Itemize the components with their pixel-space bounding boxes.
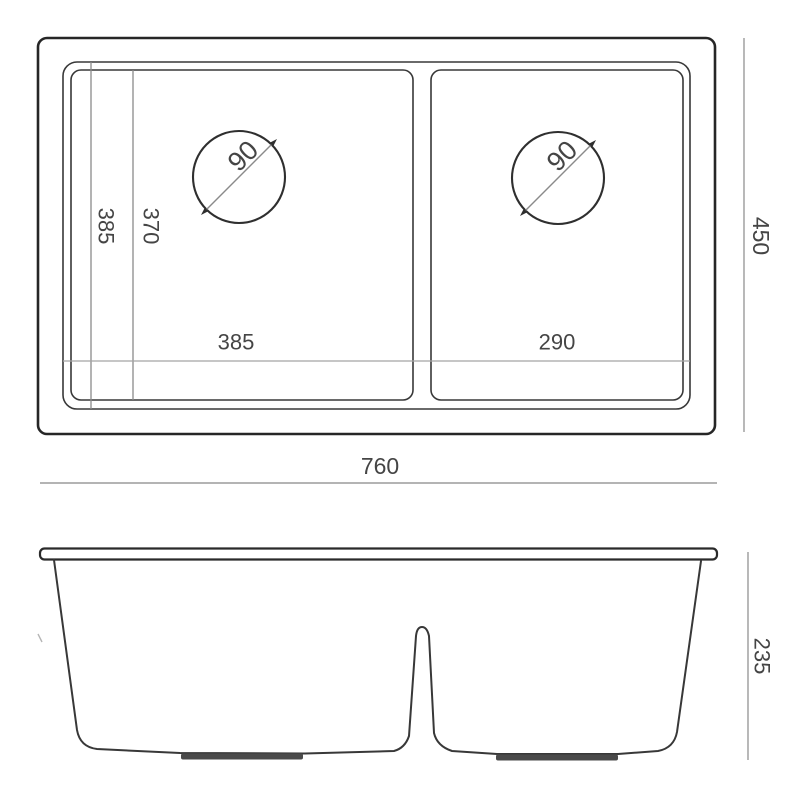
bowl2-drain: 90 [512, 132, 604, 224]
tick-mark [38, 634, 42, 642]
bowl1-drain-diameter-label: 90 [222, 135, 264, 177]
bowl1-drain: 90 [193, 131, 285, 223]
bowl1-width-label: 385 [218, 330, 255, 355]
sink-body-profile [54, 560, 701, 754]
bowl2-drain-strip [496, 755, 618, 761]
sink-dimension-drawing: 90 90 385 370 385 290 450 760 [0, 0, 800, 794]
left-outer-depth-label: 385 [94, 208, 119, 245]
overall-depth-label: 450 [748, 217, 774, 255]
bowl1-drain-strip [181, 754, 303, 760]
top-view: 90 90 385 370 385 290 450 760 [38, 38, 774, 483]
overall-width-label: 760 [361, 453, 399, 479]
front-view: 235 [38, 549, 775, 761]
left-inner-depth-label: 370 [139, 208, 164, 245]
technical-drawing-page: 90 90 385 370 385 290 450 760 [0, 0, 800, 794]
overall-height-label: 235 [750, 638, 775, 675]
bowl2-drain-diameter-label: 90 [541, 135, 583, 177]
bowl2-width-label: 290 [539, 330, 576, 355]
rim-bar [40, 549, 717, 560]
